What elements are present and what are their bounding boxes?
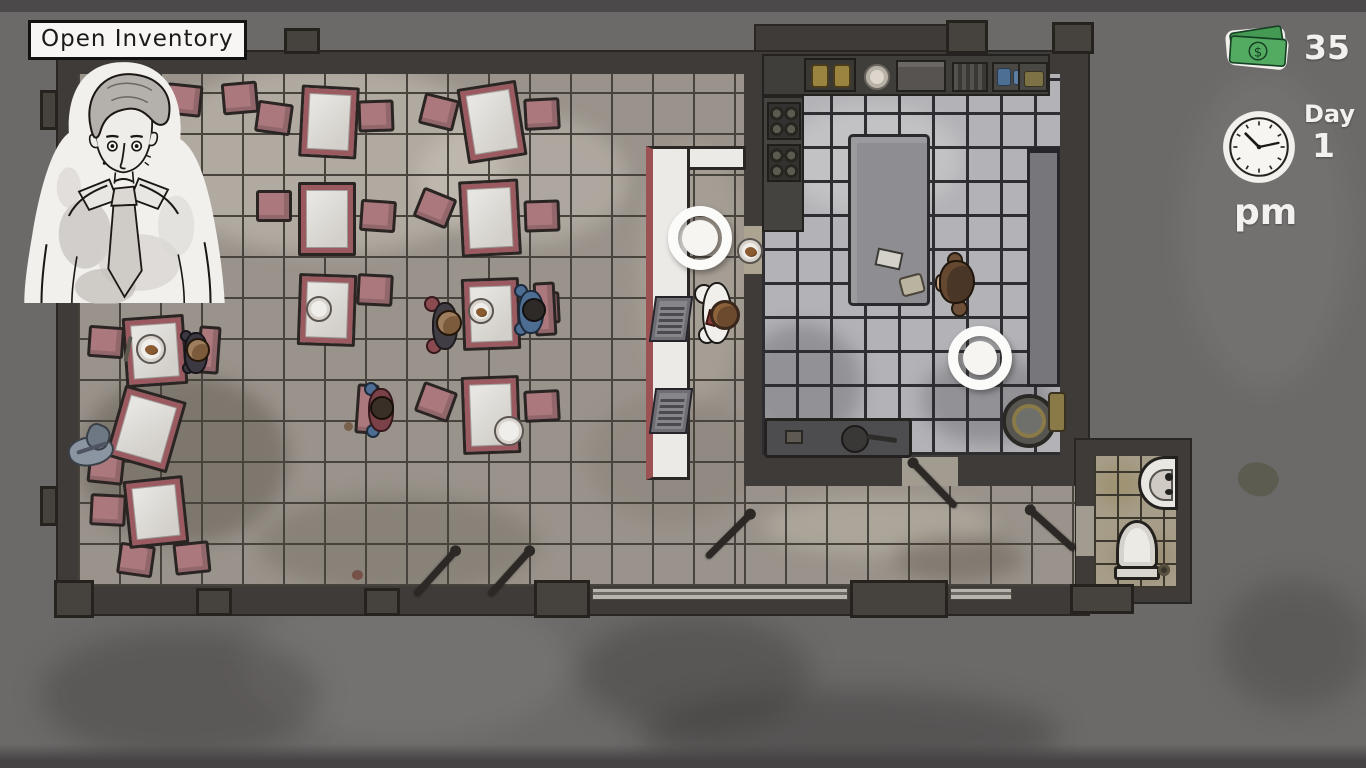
dining-table[interactable] [123,475,190,549]
toilet-bowl [1116,520,1158,570]
chef-hair [939,260,975,304]
wall-pillar [1052,22,1094,54]
food [745,247,756,256]
wall-pillar [54,580,94,618]
dining-table[interactable] [298,182,356,256]
floor-stain [894,536,1024,581]
customer-head [186,338,210,362]
dollar-glyph: $ [1254,45,1263,60]
floor-drain [1158,564,1170,576]
dishes [997,68,1011,86]
window [950,588,1012,600]
day-number: 1 [1312,126,1335,165]
meridiem-label: pm [1234,192,1297,233]
ground-stain [40,630,320,760]
stove[interactable] [767,144,801,182]
leaf-decal [1232,455,1283,504]
brass-basin [1024,71,1044,87]
floor-spot [352,570,363,580]
customer[interactable] [424,296,468,356]
dining-table[interactable] [456,80,527,164]
wash-station[interactable] [1018,62,1048,92]
chair[interactable] [172,540,211,576]
empty-plate[interactable] [494,416,524,446]
player-portrait[interactable] [10,56,238,304]
vent-grill [952,62,988,92]
chair[interactable] [256,190,292,222]
cash-register[interactable] [649,296,693,342]
customer[interactable] [514,282,558,340]
money-amount: 35 [1304,28,1350,67]
chef[interactable] [935,252,977,318]
griddle[interactable] [896,60,946,92]
ground-stain [1220,580,1366,710]
customer-head [370,396,394,420]
customer-head [522,298,546,322]
day-label: Day [1304,100,1355,128]
kitchen-item [785,430,803,444]
open-inventory-button[interactable]: Open Inventory [28,20,247,60]
cash-register[interactable] [649,388,693,434]
customer-head [436,310,462,336]
kitchen-counter-strip [762,54,1050,96]
wall-pillar [364,588,400,616]
window [592,588,848,600]
floor-spot [344,422,353,431]
customer[interactable] [356,382,400,438]
food [476,308,486,316]
customer[interactable] [180,326,222,376]
food [145,345,157,354]
game-screen: Open Inventory [0,0,1366,768]
wall-pillar [534,580,590,618]
chair[interactable] [359,199,397,233]
kitchen-interaction-marker[interactable] [948,326,1012,390]
stove[interactable] [767,102,801,140]
chair[interactable] [356,273,394,307]
north-wall-slab [754,24,970,52]
wall-pillar [196,588,232,616]
wall-pillar [850,580,948,618]
waiter-carrying-plate[interactable] [694,280,740,354]
food-plate[interactable] [468,298,494,324]
deep-fryer[interactable] [804,58,856,92]
chair[interactable] [523,199,560,232]
wall-pillar [1070,584,1134,614]
money-display: $ 35 [1222,22,1366,72]
wall-pillar [284,28,320,54]
skillet-handle [867,434,897,443]
prep-table[interactable] [764,418,912,458]
floor-stain [258,494,538,586]
corridor-floor [744,486,1075,586]
portrait-drawing [10,56,238,304]
pot-fixture [1048,392,1066,432]
toilet-tank [1114,566,1160,580]
top-shade [0,0,1366,12]
time-display: Day 1 pm [1220,100,1366,230]
chair[interactable] [87,325,125,359]
dining-table[interactable] [458,178,522,257]
faucet [1165,473,1173,481]
fryer-basket [811,64,829,88]
toilet[interactable] [1114,520,1160,582]
chair[interactable] [254,100,294,137]
wall-counter [1027,147,1060,387]
chair[interactable] [523,389,561,423]
cash-icon: $ [1222,22,1294,72]
service-plate[interactable] [737,238,763,264]
chair[interactable] [89,493,127,527]
counter-plate [864,64,890,90]
bottom-shade [0,744,1366,768]
wall-pillar [40,486,58,526]
stove-unit [762,96,804,232]
clock-icon [1220,108,1298,186]
skillet [841,425,869,453]
wall-pillar [946,20,988,54]
carried-plate [710,300,740,330]
dining-table[interactable] [298,85,360,160]
chair[interactable] [523,97,561,131]
bar-interaction-marker[interactable] [668,206,732,270]
chair[interactable] [357,99,394,132]
faucet-handle [1165,489,1173,495]
food-plate[interactable] [136,334,166,364]
fryer-basket [833,64,851,88]
bathroom-doorway [1076,506,1094,556]
empty-plate[interactable] [306,296,332,322]
mop-rag[interactable] [68,424,128,474]
floor-stain [1096,466,1142,506]
